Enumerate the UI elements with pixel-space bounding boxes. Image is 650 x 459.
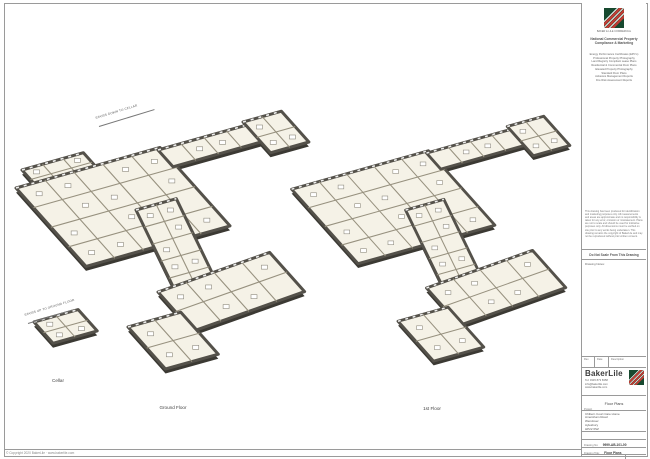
panel-heading: National Commercial Property Compliance … [582,37,646,45]
date-header-cell: Date [595,357,609,367]
logo-caption: BAKER & LILE COMMERCIAL [582,30,646,34]
brand-logo-icon [629,370,644,385]
ground-floor-label: Ground Floor [138,405,208,410]
title-block-panel: BAKER & LILE COMMERCIAL National Commerc… [581,3,646,456]
drawing-sheet: Ground Floor 1st Floor Cellar STAIRS DOW… [0,0,650,459]
drawing-title-row: Drawing Title: Floor Plans [582,439,646,446]
drawing-date-row: Drawing Date: 2020 [582,447,646,453]
drawing-notes-label: Drawing Notes: [582,262,646,266]
drawing-size-row: Drawing Size: @A1 Rev 1 [582,454,646,459]
drawing-no-row: Drawing No: 9999-AB-101-00 [582,431,646,438]
rev-header-cell: Rev [582,357,595,367]
rev-cell: Rev 1 [625,455,646,459]
project-value: Floor Plans [582,402,646,406]
services-list: Energy Performance Certificates (EPC's)P… [582,53,646,83]
cellar-label: Cellar [40,378,76,383]
brand-web: www.bakerlile.com [585,386,608,390]
first-floor-label: 1st Floor [402,406,462,411]
do-not-scale-label: Do Not Scale From This Drawing [582,249,646,260]
revision-table: Rev Date Description [582,356,646,368]
brand-block: BakerLile Tel: 0345 873 8358 info@bakerl… [582,369,646,395]
description-header-cell: Description [609,357,646,367]
disclaimer-text: This drawing has been produced for ident… [582,210,646,238]
first-floor-plan [284,98,584,368]
site-address: Chiltern Court Care HomeAmersham RoadWen… [582,410,646,432]
list-item: Fire Risk Assessment Reports [582,79,646,83]
frame-bottom-line [4,449,582,450]
brand-name: BakerLile [585,369,623,378]
copyright-text: © Copyright 2020 BakerLile · www.bakerli… [6,451,74,455]
